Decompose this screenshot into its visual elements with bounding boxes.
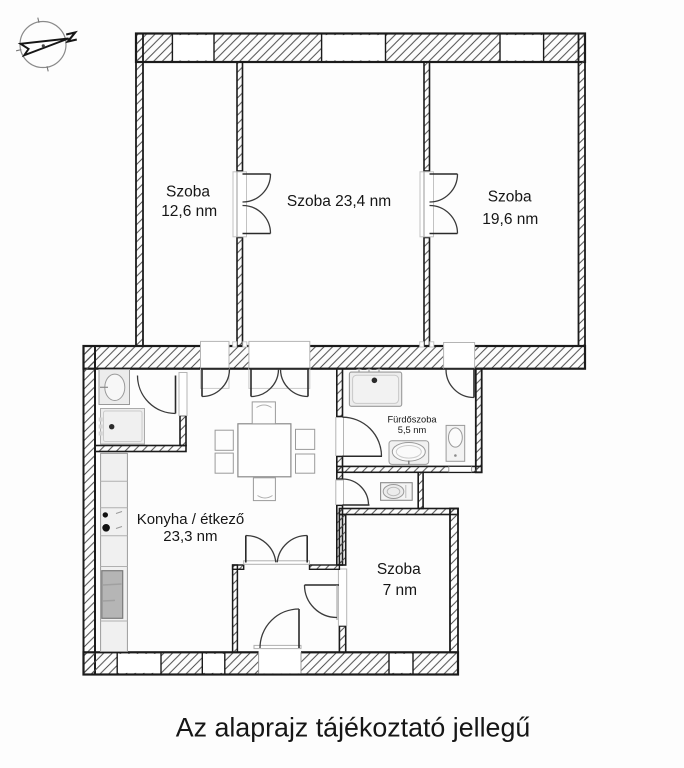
svg-text:23,3 nm: 23,3 nm xyxy=(163,528,217,545)
svg-text:12,6 nm: 12,6 nm xyxy=(161,203,217,220)
svg-text:7 nm: 7 nm xyxy=(383,582,417,599)
svg-text:Szoba: Szoba xyxy=(166,183,210,200)
svg-text:Szoba 23,4 nm: Szoba 23,4 nm xyxy=(287,193,391,210)
svg-text:Fürdőszoba: Fürdőszoba xyxy=(387,415,437,425)
svg-text:Az alaprajz tájékoztató jelleg: Az alaprajz tájékoztató jellegű xyxy=(176,713,531,743)
svg-text:5,5 nm: 5,5 nm xyxy=(398,425,427,435)
svg-text:Szoba: Szoba xyxy=(488,189,532,206)
svg-text:Konyha / étkező: Konyha / étkező xyxy=(137,511,245,528)
svg-text:Szoba: Szoba xyxy=(377,561,421,578)
svg-text:19,6 nm: 19,6 nm xyxy=(482,211,538,228)
